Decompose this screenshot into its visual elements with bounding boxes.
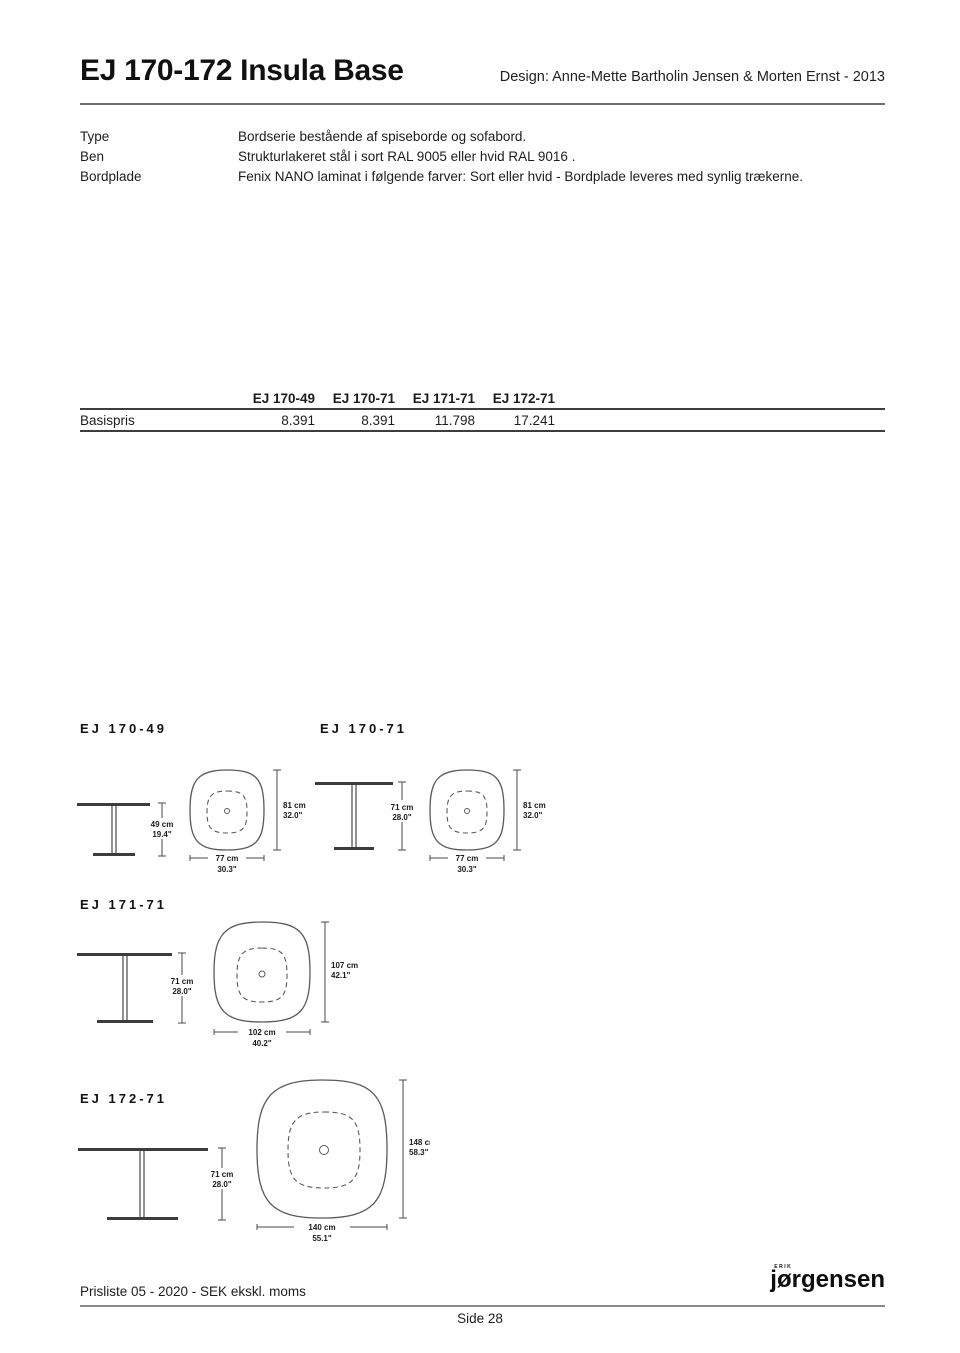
table-inner-outline <box>237 948 287 1002</box>
price-list-page: EJ 170-172 Insula Base Design: Anne-Mett… <box>0 0 960 1353</box>
spec-label: Bordplade <box>80 167 238 187</box>
price-row-label: Basispris <box>80 413 235 428</box>
price-column-header: EJ 170-71 <box>315 391 395 406</box>
dim-depth-in: 42.1" <box>331 971 351 980</box>
side-height-dimension: 49 cm 19.4" <box>151 803 174 856</box>
dim-height-cm: 49 cm <box>151 820 174 829</box>
center-hole <box>225 809 230 814</box>
top-width-dimension: 102 cm 40.2" <box>214 1028 310 1048</box>
center-hole <box>259 971 265 977</box>
spec-list: Type Bordserie bestående af spiseborde o… <box>80 127 803 187</box>
table-top-outline <box>430 770 504 850</box>
dim-depth-cm: 81 cm <box>283 801 306 810</box>
spec-value: Strukturlakeret stål i sort RAL 9005 ell… <box>238 147 575 167</box>
dim-height-in: 28.0" <box>212 1180 232 1189</box>
footer-divider <box>80 1305 885 1307</box>
dim-height-in: 19.4" <box>152 830 172 839</box>
header-divider <box>80 103 885 105</box>
top-view-drawing <box>257 1080 387 1218</box>
side-height-dimension: 71 cm 28.0" <box>211 1148 234 1220</box>
table-inner-outline <box>288 1112 360 1188</box>
dim-depth-cm: 148 cm <box>409 1138 430 1147</box>
dim-depth-in: 32.0" <box>523 811 543 820</box>
table-top-outline <box>190 770 264 850</box>
table-base-side <box>97 1020 153 1023</box>
top-width-dimension: 140 cm 55.1" <box>257 1223 387 1243</box>
dim-width-in: 30.3" <box>217 865 237 874</box>
table-top-outline <box>257 1080 387 1218</box>
dim-width-cm: 102 cm <box>248 1028 275 1037</box>
table-top-outline <box>214 922 310 1022</box>
brand-logo-erik: ERIK <box>774 1264 792 1270</box>
top-height-dimension: 81 cm 32.0" <box>273 770 306 850</box>
table-inner-outline <box>447 791 487 833</box>
price-column-header: EJ 172-71 <box>475 391 555 406</box>
table-base-side <box>93 853 135 856</box>
brand-logo-jorgensen: jørgensen <box>770 1266 885 1293</box>
side-view-drawing <box>315 782 393 850</box>
spec-value: Fenix NANO laminat i følgende farver: So… <box>238 167 803 187</box>
side-height-dimension: 71 cm 28.0" <box>171 953 194 1023</box>
side-view-drawing <box>78 1148 208 1220</box>
price-column-header: EJ 170-49 <box>235 391 315 406</box>
diagram-ej-172-71: 71 cm 28.0" 148 cm 58.3" 140 cm 55.1" <box>70 1075 430 1255</box>
top-width-dimension: 77 cm 30.3" <box>190 854 264 874</box>
dim-height-cm: 71 cm <box>171 977 194 986</box>
top-view-drawing <box>190 770 264 850</box>
spec-row-type: Type Bordserie bestående af spiseborde o… <box>80 127 803 147</box>
dim-height-in: 28.0" <box>172 987 192 996</box>
spec-row-bordplade: Bordplade Fenix NANO laminat i følgende … <box>80 167 803 187</box>
table-top-side <box>77 803 150 806</box>
table-top-side <box>78 1148 208 1151</box>
price-table: EJ 170-49 EJ 170-71 EJ 171-71 EJ 172-71 … <box>80 388 885 432</box>
page-number: Side 28 <box>0 1311 960 1326</box>
side-height-dimension: 71 cm 28.0" <box>391 782 414 850</box>
dim-depth-cm: 81 cm <box>523 801 546 810</box>
center-hole <box>320 1146 329 1155</box>
top-height-dimension: 148 cm 58.3" <box>399 1080 430 1218</box>
price-table-header-row: EJ 170-49 EJ 170-71 EJ 171-71 EJ 172-71 <box>80 388 885 410</box>
dim-height-in: 28.0" <box>392 813 412 822</box>
price-column-header: EJ 171-71 <box>395 391 475 406</box>
top-height-dimension: 107 cm 42.1" <box>321 922 358 1022</box>
top-width-dimension: 77 cm 30.3" <box>430 854 504 874</box>
center-hole <box>465 809 470 814</box>
price-value: 8.391 <box>315 413 395 428</box>
top-height-dimension: 81 cm 32.0" <box>513 770 546 850</box>
dim-height-cm: 71 cm <box>391 803 414 812</box>
dim-depth-in: 32.0" <box>283 811 303 820</box>
spec-row-ben: Ben Strukturlakeret stål i sort RAL 9005… <box>80 147 803 167</box>
side-view-drawing <box>77 803 150 856</box>
table-base-side <box>107 1217 178 1220</box>
spec-label: Type <box>80 127 238 147</box>
top-view-drawing <box>214 922 310 1022</box>
dim-width-in: 30.3" <box>457 865 477 874</box>
dim-width-cm: 140 cm <box>308 1223 335 1232</box>
table-top-side <box>315 782 393 785</box>
brand-logo: ERIK jørgensen <box>770 1266 885 1295</box>
price-value: 8.391 <box>235 413 315 428</box>
table-base-side <box>334 847 374 850</box>
table-inner-outline <box>207 791 247 833</box>
dim-width-cm: 77 cm <box>456 854 479 863</box>
dim-depth-in: 58.3" <box>409 1148 429 1157</box>
top-view-drawing <box>430 770 504 850</box>
diagram-ej-170-71: 71 cm 28.0" 81 cm 32.0" 77 cm 30.3" <box>310 715 560 890</box>
diagram-ej-171-71: 71 cm 28.0" 107 cm 42.1" 102 cm 40.2" <box>70 895 380 1070</box>
spec-label: Ben <box>80 147 238 167</box>
design-credit: Design: Anne-Mette Bartholin Jensen & Mo… <box>500 69 885 85</box>
pricelist-edition: Prisliste 05 - 2020 - SEK ekskl. moms <box>80 1284 306 1299</box>
side-view-drawing <box>77 953 172 1023</box>
table-top-side <box>77 953 172 956</box>
price-value: 17.241 <box>475 413 555 428</box>
spec-value: Bordserie bestående af spiseborde og sof… <box>238 127 526 147</box>
price-table-row: Basispris 8.391 8.391 11.798 17.241 <box>80 410 885 432</box>
page-title: EJ 170-172 Insula Base <box>80 54 404 88</box>
dim-width-in: 55.1" <box>312 1234 332 1243</box>
price-value: 11.798 <box>395 413 475 428</box>
dim-width-cm: 77 cm <box>216 854 239 863</box>
dim-depth-cm: 107 cm <box>331 961 358 970</box>
dim-width-in: 40.2" <box>252 1039 272 1048</box>
dim-height-cm: 71 cm <box>211 1170 234 1179</box>
diagram-ej-170-49: 49 cm 19.4" 81 cm 32.0" 77 cm 30.3" <box>70 715 320 890</box>
